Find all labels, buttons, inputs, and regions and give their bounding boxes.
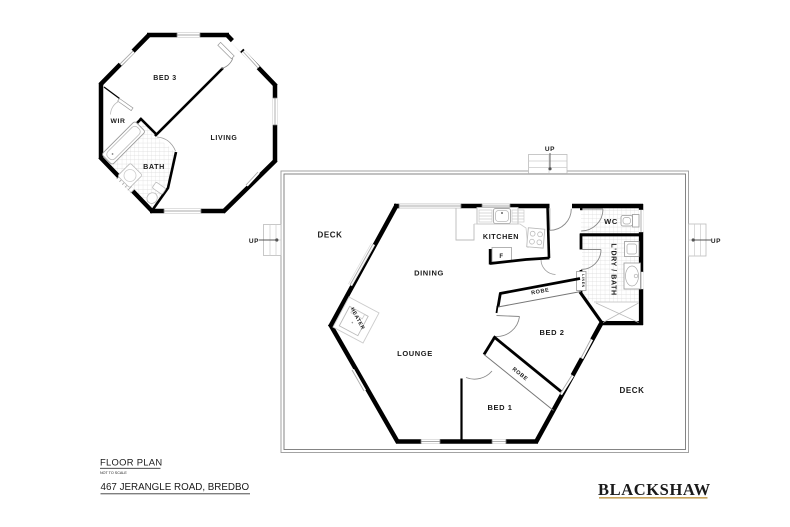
svg-text:UP: UP <box>545 146 555 153</box>
svg-text:DECK: DECK <box>317 231 342 240</box>
svg-text:BATH: BATH <box>143 162 165 171</box>
svg-text:KITCHEN: KITCHEN <box>483 232 519 241</box>
svg-text:L'DRY / BATH: L'DRY / BATH <box>610 243 617 295</box>
svg-text:BED 3: BED 3 <box>153 75 177 82</box>
svg-text:WC: WC <box>604 217 618 226</box>
svg-text:BLACKSHAW: BLACKSHAW <box>598 480 711 499</box>
svg-text:467 JERANGLE ROAD, BREDBO: 467 JERANGLE ROAD, BREDBO <box>101 482 250 493</box>
svg-text:F: F <box>499 254 503 260</box>
svg-text:BED 1: BED 1 <box>487 403 512 412</box>
svg-text:LOUNGE: LOUNGE <box>397 349 433 358</box>
svg-text:LIVING: LIVING <box>211 135 238 142</box>
svg-text:UP: UP <box>711 238 721 245</box>
svg-text:FLOOR PLAN: FLOOR PLAN <box>100 457 162 468</box>
svg-text:UP: UP <box>249 238 259 245</box>
svg-text:BED 2: BED 2 <box>539 328 564 337</box>
svg-text:NOT TO SCALE: NOT TO SCALE <box>100 471 127 475</box>
svg-text:DINING: DINING <box>414 269 444 278</box>
svg-text:LINEN: LINEN <box>581 274 585 288</box>
svg-text:DECK: DECK <box>619 386 644 395</box>
svg-text:WIR: WIR <box>110 118 125 125</box>
